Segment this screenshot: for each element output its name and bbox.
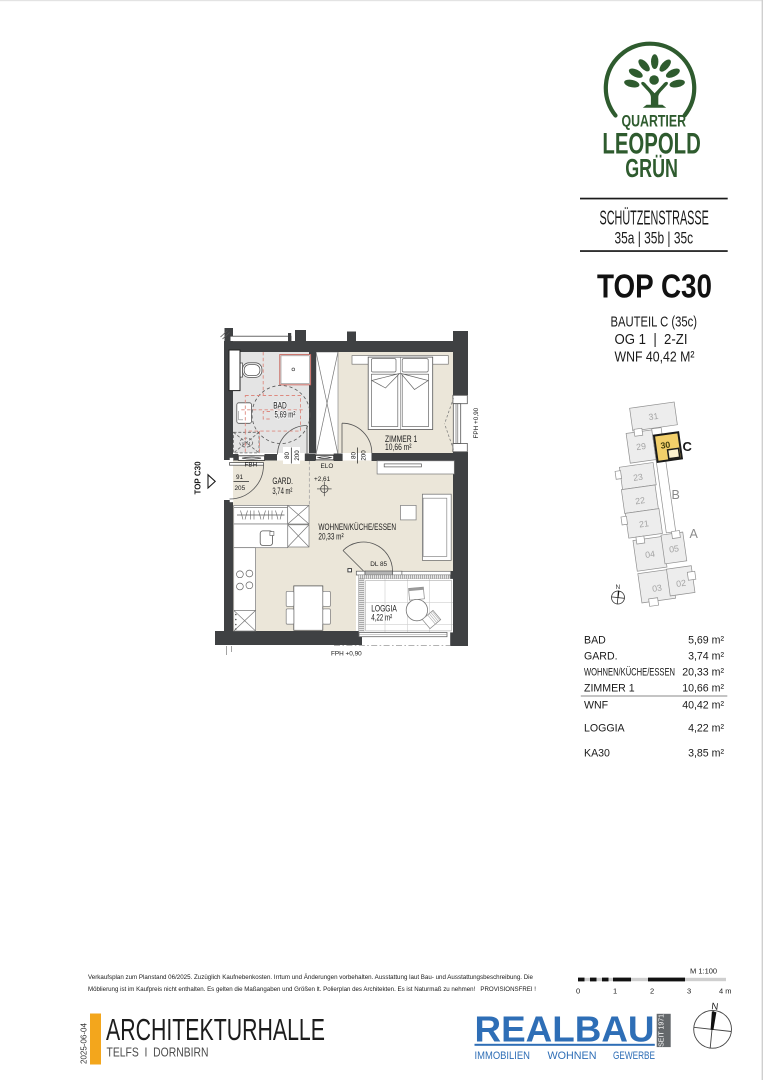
svg-text:21: 21 (638, 518, 649, 529)
svg-text:2025-06-04: 2025-06-04 (80, 1023, 89, 1064)
svg-text:20,33 m²: 20,33 m² (318, 532, 343, 543)
svg-text:03: 03 (651, 583, 662, 594)
svg-text:FPH +0,90: FPH +0,90 (473, 407, 480, 438)
svg-text:4,22 m²: 4,22 m² (371, 612, 392, 623)
svg-text:31: 31 (648, 411, 659, 422)
svg-text:5,69 m²: 5,69 m² (275, 409, 296, 420)
svg-text:FPH +0,90: FPH +0,90 (331, 650, 362, 657)
svg-text:GEWERBE: GEWERBE (613, 1050, 655, 1062)
svg-text:30: 30 (660, 439, 671, 450)
svg-text:Möblierung ist im Kaufpreis ni: Möblierung ist im Kaufpreis nicht enthal… (88, 986, 536, 993)
svg-text:IMMOBILIEN: IMMOBILIEN (475, 1050, 531, 1062)
svg-text:3,74 m²: 3,74 m² (688, 651, 724, 663)
svg-text:29: 29 (636, 441, 647, 452)
svg-text:05: 05 (668, 543, 679, 554)
svg-text:ZIMMER 1: ZIMMER 1 (584, 683, 635, 695)
svg-text:N: N (616, 584, 621, 591)
svg-text:80: 80 (284, 452, 291, 459)
svg-text:04: 04 (644, 549, 655, 560)
svg-text:OG 1 | 2-ZI: OG 1 | 2-ZI (615, 331, 688, 348)
svg-text:LOGGIA: LOGGIA (584, 723, 626, 735)
svg-text:TOP C30: TOP C30 (194, 461, 203, 495)
svg-text:WNF 40,42 M²: WNF 40,42 M² (615, 348, 695, 365)
svg-text:WNF: WNF (584, 700, 609, 712)
svg-text:3,74 m²: 3,74 m² (272, 486, 292, 497)
svg-text:4,22 m²: 4,22 m² (688, 723, 724, 735)
svg-text:GARD.: GARD. (584, 651, 618, 663)
svg-text:80: 80 (350, 452, 357, 459)
svg-text:3: 3 (687, 987, 691, 996)
svg-text:A: A (690, 527, 699, 541)
svg-text:ARCHITEKTURHALLE: ARCHITEKTURHALLE (106, 1013, 325, 1047)
svg-text:WOHNEN: WOHNEN (548, 1050, 597, 1062)
svg-text:23: 23 (632, 472, 643, 483)
svg-text:0: 0 (576, 987, 580, 996)
svg-text:91: 91 (236, 474, 244, 481)
svg-text:WOHNEN/KÜCHE/ESSEN: WOHNEN/KÜCHE/ESSEN (584, 667, 675, 679)
svg-text:20,33 m²: 20,33 m² (682, 667, 724, 679)
svg-text:B: B (672, 488, 680, 502)
svg-text:205: 205 (235, 485, 246, 492)
svg-text:N: N (711, 1001, 719, 1013)
svg-text:SCHÜTZENSTRASSE: SCHÜTZENSTRASSE (600, 208, 709, 230)
svg-text:KA30: KA30 (584, 748, 610, 760)
svg-text:GRÜN: GRÜN (625, 154, 678, 183)
svg-text:200: 200 (361, 450, 368, 461)
svg-text:10,66 m²: 10,66 m² (682, 683, 724, 695)
svg-text:ELO: ELO (321, 463, 334, 470)
svg-text:1: 1 (613, 987, 617, 996)
svg-text:BAD: BAD (584, 635, 606, 647)
svg-text:REALBAU: REALBAU (475, 1008, 655, 1049)
svg-text:4 m: 4 m (719, 987, 732, 996)
svg-text:BAUTEIL C (35c): BAUTEIL C (35c) (611, 313, 698, 330)
svg-text:22: 22 (635, 495, 646, 506)
svg-text:M 1:100: M 1:100 (690, 967, 717, 976)
svg-text:5,69 m²: 5,69 m² (688, 635, 724, 647)
svg-text:DL 85: DL 85 (370, 561, 387, 568)
svg-text:SEIT 1971: SEIT 1971 (659, 1014, 666, 1047)
svg-text:Verkaufsplan zum Planstand 06/: Verkaufsplan zum Planstand 06/2025. Zuzü… (88, 973, 533, 981)
svg-text:2: 2 (650, 987, 654, 996)
svg-text:200: 200 (294, 450, 301, 461)
svg-text:TOP C30: TOP C30 (597, 268, 712, 305)
svg-text:+2,61: +2,61 (314, 476, 331, 483)
svg-text:C: C (683, 439, 693, 454)
svg-text:10,66 m²: 10,66 m² (385, 442, 412, 453)
svg-text:3,85 m²: 3,85 m² (688, 748, 724, 760)
svg-text:TELFS I DORNBIRN: TELFS I DORNBIRN (107, 1045, 209, 1059)
svg-text:WM: WM (242, 441, 251, 447)
svg-text:FBH: FBH (245, 462, 258, 469)
svg-text:02: 02 (676, 578, 687, 589)
svg-text:35a | 35b | 35c: 35a | 35b | 35c (615, 228, 694, 247)
svg-text:40,42 m²: 40,42 m² (682, 700, 724, 712)
